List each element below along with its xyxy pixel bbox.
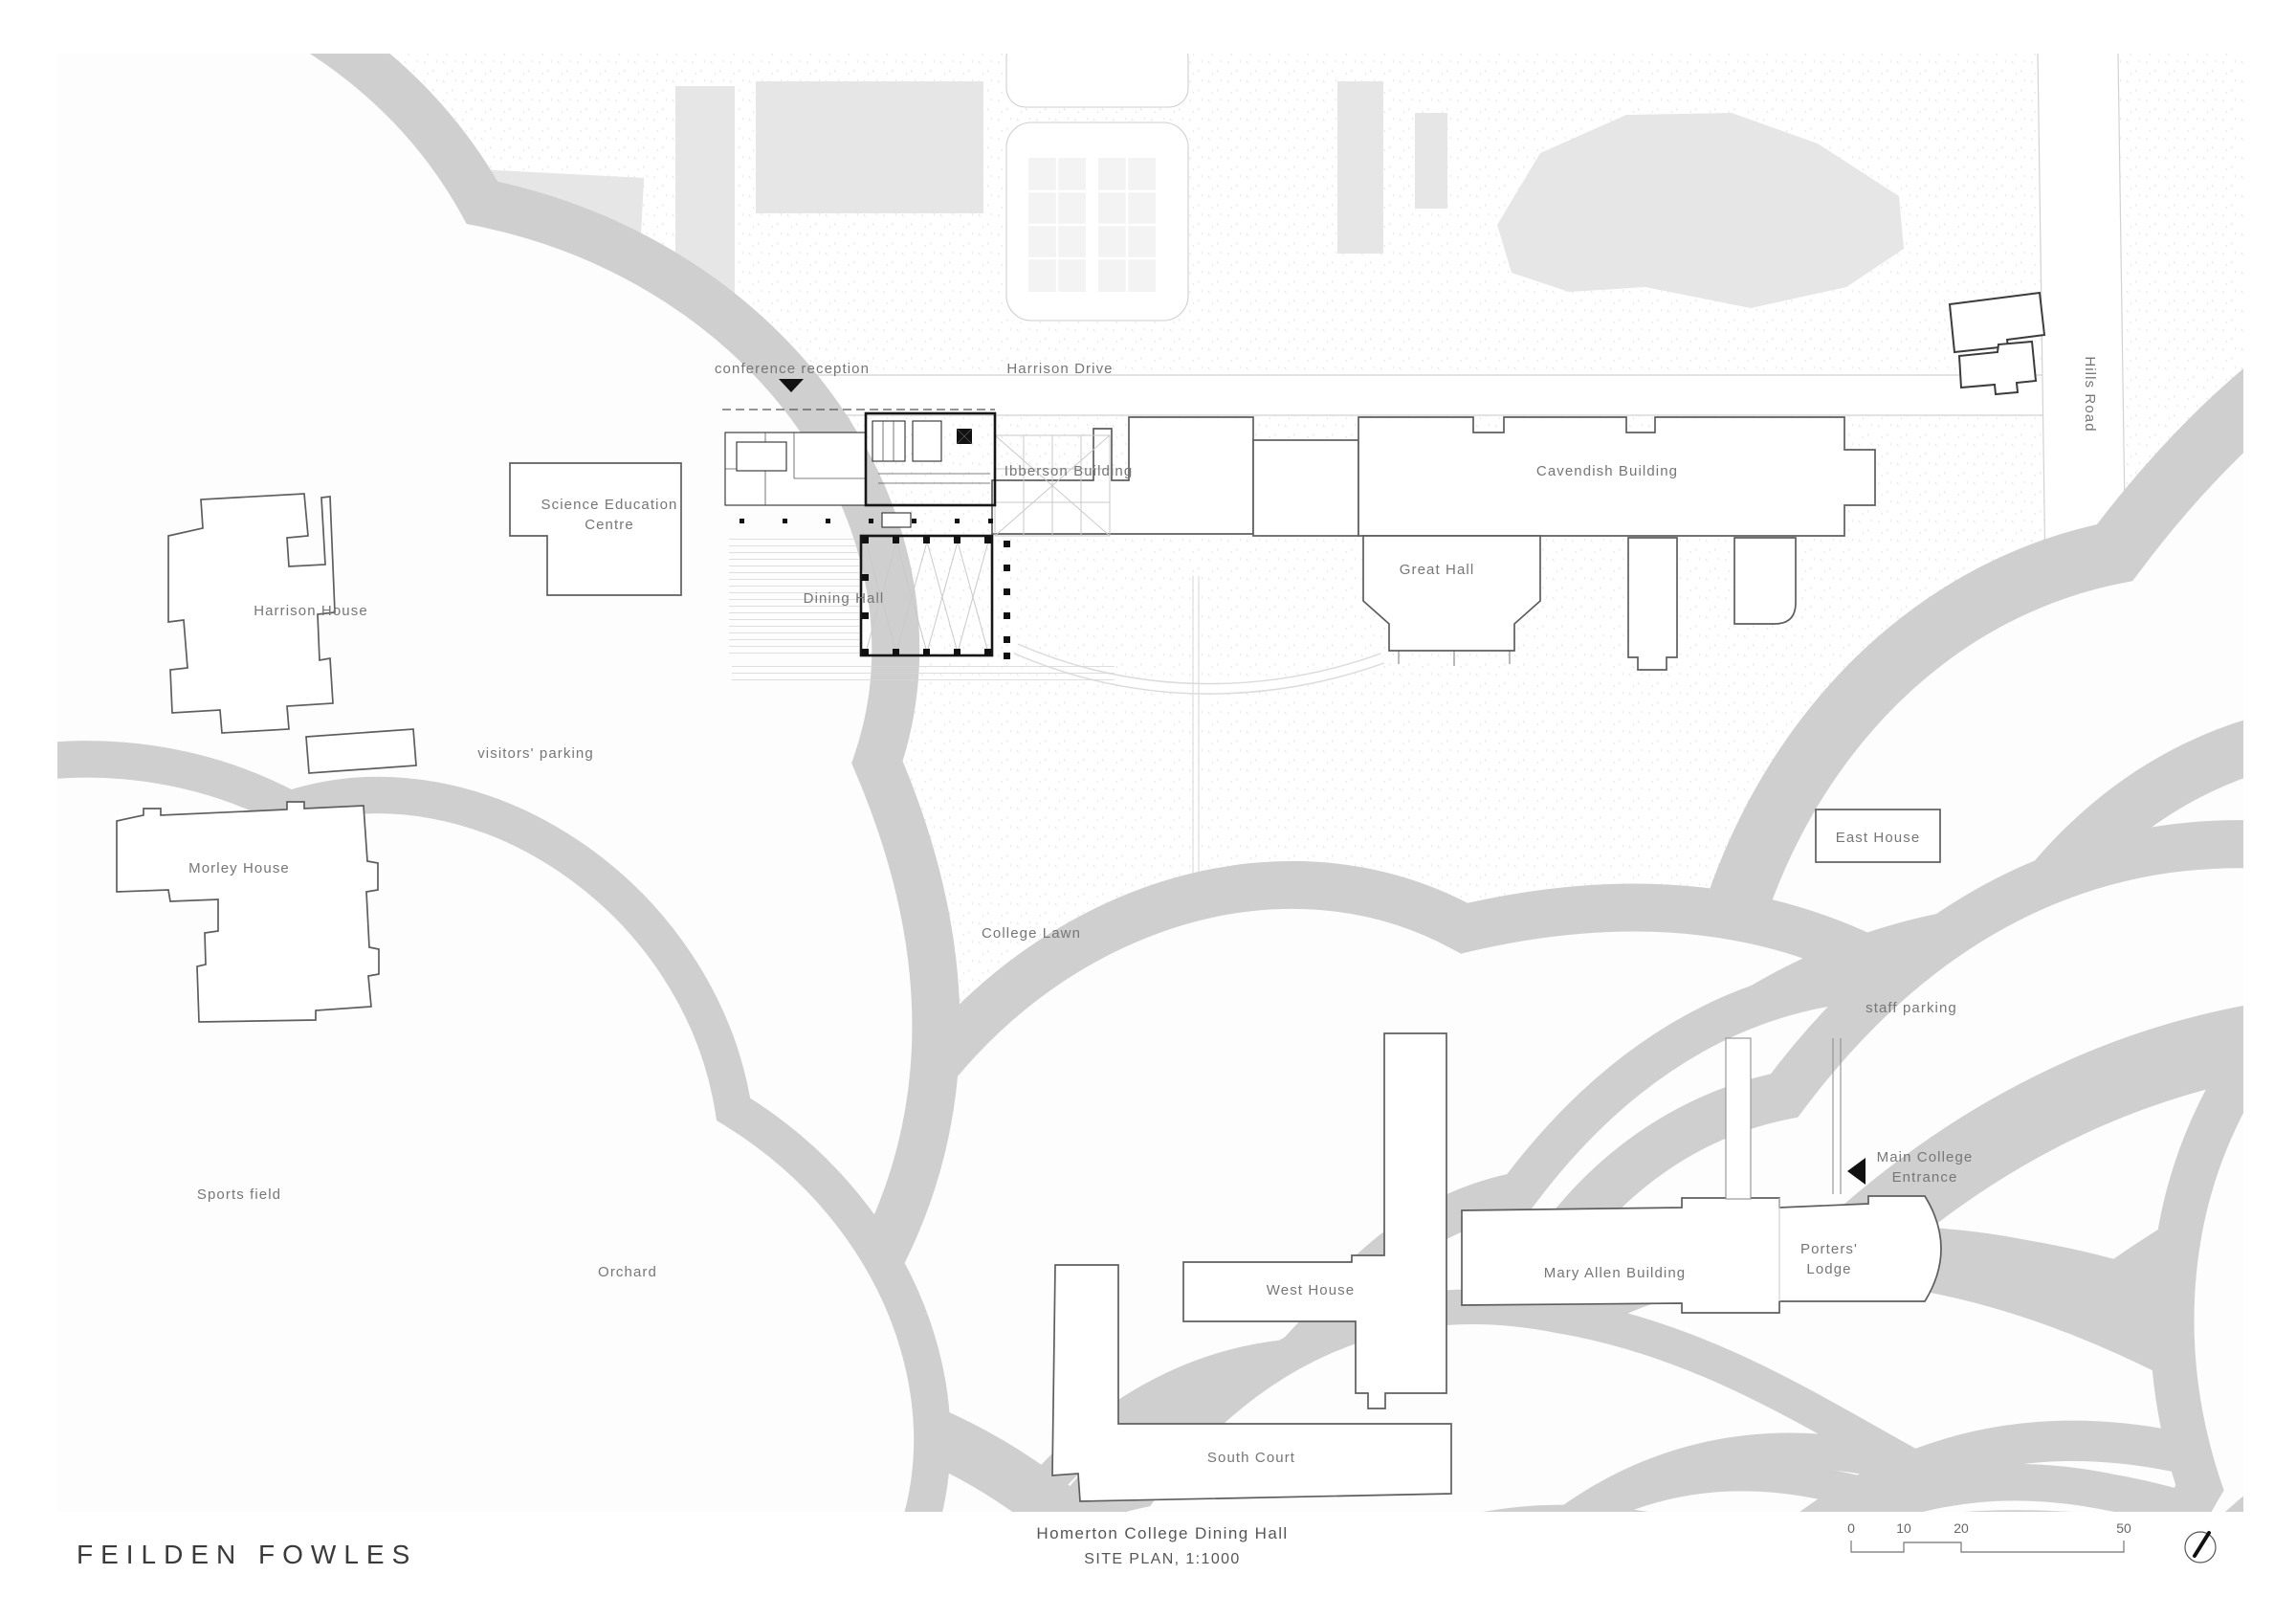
mary-allen-porters-lodge-building [1462,1196,1941,1313]
kitchen-room-2 [913,421,941,461]
context-building-slab4 [1415,113,1447,209]
label-ibberson-building: Ibberson Building [1004,463,1134,479]
scale-label-0: 0 [1847,1520,1855,1536]
scale-label-10: 10 [1896,1520,1911,1536]
site-plan-svg: conference reception Harrison Drive Hill… [0,0,2296,1619]
firm-logo: FEILDEN FOWLES [77,1540,417,1569]
label-main-college-entrance-1: Main College [1877,1149,1974,1165]
scale-label-20: 20 [1954,1520,1969,1536]
label-visitors-parking: visitors' parking [477,745,594,762]
label-east-house: East House [1836,830,1921,846]
context-building-slab3 [1337,81,1383,254]
label-science-education-centre-1: Science Education [541,497,678,513]
scale-label-50: 50 [2116,1520,2131,1536]
great-hall-building [1363,536,1540,651]
south-wing-2 [1734,538,1796,624]
label-sports-field: Sports field [197,1187,281,1203]
label-conference-reception: conference reception [715,361,870,377]
link-block [1253,440,1358,536]
label-orchard: Orchard [598,1264,657,1280]
south-wing-1 [1628,538,1677,670]
tennis-courts [1006,38,1188,321]
label-porters-lodge-2: Lodge [1806,1261,1851,1277]
kitchen-room-1 [872,421,905,461]
label-harrison-house: Harrison House [254,603,368,619]
label-mary-allen-building: Mary Allen Building [1544,1265,1686,1281]
garden-wall-west [1726,1038,1751,1199]
context-building-slab2 [756,81,983,213]
service-room [737,442,786,471]
label-hills-road: Hills Road [2082,356,2098,432]
label-dining-hall: Dining Hall [804,590,885,607]
label-science-education-centre-2: Centre [585,517,634,533]
drawing-title: Homerton College Dining Hall [1036,1524,1288,1542]
drawing-sheet: conference reception Harrison Drive Hill… [0,0,2296,1619]
label-college-lawn: College Lawn [982,925,1081,942]
label-porters-lodge-1: Porters' [1800,1241,1858,1257]
label-west-house: West House [1267,1282,1355,1298]
label-great-hall: Great Hall [1400,562,1475,578]
label-main-college-entrance-2: Entrance [1892,1169,1958,1186]
drawing-subtitle: SITE PLAN, 1:1000 [1084,1551,1240,1567]
foyer-desk [882,513,911,527]
terrace-hatch-south [732,660,1115,685]
label-cavendish-building: Cavendish Building [1536,463,1678,479]
harrison-house-annex [306,729,416,773]
label-south-court: South Court [1207,1450,1295,1466]
label-staff-parking: staff parking [1865,1000,1957,1016]
label-morley-house: Morley House [188,860,290,876]
label-harrison-drive: Harrison Drive [1006,361,1113,377]
